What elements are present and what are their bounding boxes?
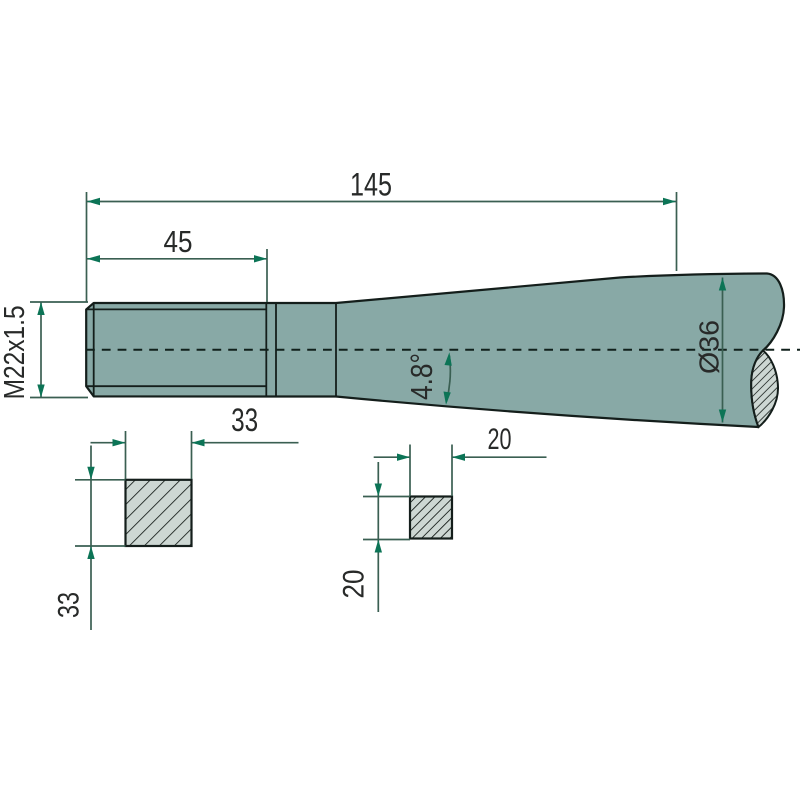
svg-text:45: 45 (164, 224, 193, 259)
svg-text:20: 20 (488, 423, 512, 456)
svg-text:20: 20 (338, 570, 371, 599)
svg-text:Ø36: Ø36 (694, 320, 725, 374)
svg-text:145: 145 (350, 167, 392, 203)
svg-text:M22x1.5: M22x1.5 (0, 305, 31, 399)
svg-text:33: 33 (231, 402, 258, 438)
svg-text:33: 33 (53, 592, 86, 618)
svg-text:4.8°: 4.8° (404, 353, 439, 400)
